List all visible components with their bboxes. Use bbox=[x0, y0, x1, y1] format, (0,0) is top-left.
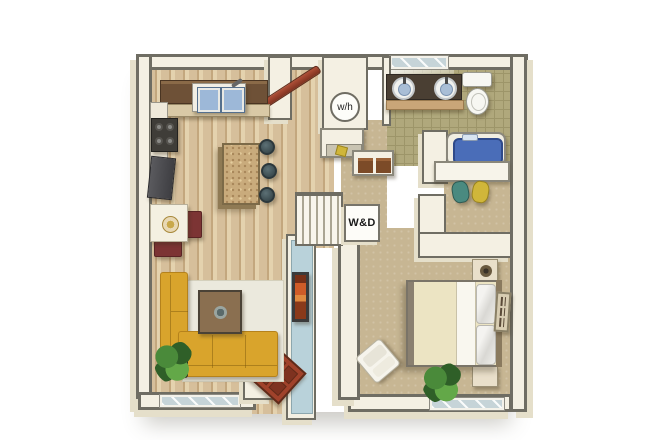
dining-chair bbox=[154, 241, 182, 257]
linen-closet-shelves bbox=[295, 192, 343, 246]
coffee-table bbox=[198, 290, 242, 334]
refrigerator bbox=[147, 156, 176, 200]
nightstand bbox=[472, 366, 498, 387]
plate-icon bbox=[162, 216, 179, 233]
towel bbox=[376, 158, 391, 173]
bar-stool bbox=[259, 139, 275, 155]
vanity-front-edge bbox=[386, 100, 464, 110]
wall-organizer bbox=[494, 292, 512, 333]
bar-stool bbox=[259, 187, 275, 203]
bed bbox=[406, 280, 500, 367]
washer-dryer-text: W&D bbox=[348, 217, 375, 229]
stove bbox=[151, 118, 178, 152]
nightstand bbox=[472, 259, 498, 282]
bathroom-sink bbox=[434, 77, 457, 100]
wall-bedroom-west bbox=[338, 242, 360, 400]
sink-bowl bbox=[440, 83, 453, 96]
bed-sheet-fold bbox=[456, 282, 476, 365]
kitchen-sink bbox=[192, 83, 246, 112]
sink-basin bbox=[198, 88, 220, 112]
water-heater-text: w/h bbox=[337, 102, 353, 113]
faucet-icon bbox=[445, 77, 448, 84]
accent-wall-panel bbox=[291, 240, 313, 414]
sink-bowl bbox=[398, 83, 411, 96]
water-heater-label: w/h bbox=[330, 92, 360, 122]
toilet-seat bbox=[471, 93, 486, 111]
bar-stool bbox=[261, 163, 277, 179]
sink-basin bbox=[222, 88, 244, 112]
table-lamp-icon bbox=[480, 265, 492, 277]
living-room-window bbox=[160, 395, 240, 407]
closet-rod-header bbox=[434, 161, 510, 182]
washer-dryer-unit: W&D bbox=[344, 204, 380, 242]
tub-pillow bbox=[462, 134, 478, 141]
bathroom-window bbox=[390, 56, 448, 69]
toilet-bowl bbox=[466, 88, 489, 115]
towel-bench bbox=[352, 150, 394, 176]
kitchen-island bbox=[222, 143, 260, 205]
bed-footboard bbox=[408, 282, 414, 365]
dining-table bbox=[150, 204, 188, 242]
toilet-tank bbox=[462, 72, 492, 87]
pillow bbox=[476, 284, 496, 324]
wall-art bbox=[292, 272, 309, 322]
sofa-section-horizontal bbox=[178, 331, 278, 377]
bedroom-top-wall bbox=[418, 232, 512, 258]
wall-right bbox=[510, 54, 527, 412]
bathroom-sink bbox=[392, 77, 415, 100]
floor-plan: w/h W&D bbox=[0, 0, 650, 440]
table-decor-icon bbox=[214, 306, 227, 319]
plant-living-room bbox=[154, 340, 194, 384]
towel bbox=[358, 158, 373, 173]
plant-bedroom bbox=[422, 362, 464, 404]
faucet-icon bbox=[403, 77, 406, 84]
